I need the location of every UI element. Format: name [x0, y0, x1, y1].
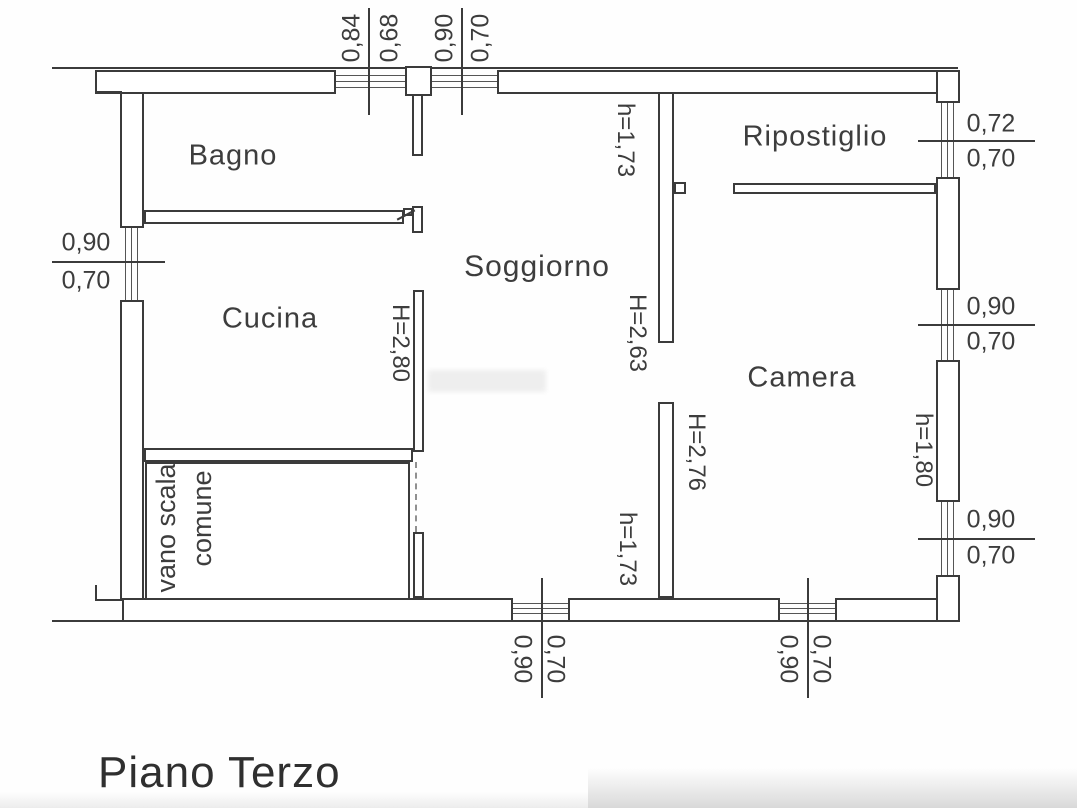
dim-right-window-top-sill: 0,70: [967, 145, 1016, 174]
left-window-pane: [137, 228, 138, 300]
dim-right-window-bottom-width: 0,90: [967, 506, 1016, 535]
dim-line-left-window: [52, 261, 165, 263]
dim-line-right-window-middle: [918, 324, 1035, 326]
top-exterior-line: [52, 67, 958, 69]
left-wall-lower: [120, 300, 144, 600]
right-wall-bottom-corner: [936, 575, 960, 622]
dim-bottom-window-right-sill: 0,70: [807, 635, 836, 684]
bottom-wall-left-segment: [122, 598, 513, 622]
room-label-camera: Camera: [747, 362, 856, 395]
dim-left-window-sill: 0,70: [62, 267, 111, 296]
bottom-right-shading: [588, 768, 1077, 808]
dim-right-window-top-width: 0,72: [967, 110, 1016, 139]
top-window-1-pane: [336, 75, 405, 76]
top-window-2-pane: [432, 81, 497, 82]
room-label-cucina: Cucina: [222, 303, 318, 336]
left-window-pane: [131, 228, 132, 300]
dim-left-window-width: 0,90: [62, 229, 111, 258]
top-window-1-pane: [336, 81, 405, 82]
top-window-2-pane: [432, 87, 497, 88]
dim-line-top-window-1: [368, 8, 370, 115]
dim-top-window-2-sill: 0,70: [467, 14, 496, 63]
left-wall-bottom-tick: [95, 585, 97, 601]
cucina-soggiorno-partition-lower: [413, 532, 424, 598]
height-camera-wall: H=2,76: [682, 413, 710, 491]
bagno-right-wall-stub: [412, 94, 423, 156]
top-wall-pier: [405, 66, 432, 96]
plan-title: Piano Terzo: [98, 748, 341, 798]
ripostiglio-wall-stub: [674, 182, 686, 194]
soggiorno-camera-partition-lower: [658, 402, 674, 598]
soggiorno-camera-partition-upper: [658, 92, 674, 343]
dim-bottom-window-left-width: 0,90: [508, 635, 537, 684]
dim-line-top-window-2: [461, 8, 463, 115]
ripostiglio-bottom-wall: [733, 183, 936, 194]
room-label-ripostiglio: Ripostiglio: [743, 121, 888, 154]
height-camera-doorway: h=1,73: [613, 512, 641, 586]
right-wall-block-1: [936, 177, 960, 290]
right-wall-block-2: [936, 360, 960, 502]
left-wall-bottom-cap: [96, 599, 122, 601]
cucina-soggiorno-partition-upper: [413, 290, 424, 452]
top-wall-right-segment: [497, 70, 938, 94]
top-window-1-pane: [336, 87, 405, 88]
vano-scala-line-1: vano scala: [149, 463, 185, 592]
dim-top-window-2-width: 0,90: [431, 14, 460, 63]
room-label-vano-scala: vano scala comune: [149, 463, 221, 592]
vano-scala-line-2: comune: [185, 463, 221, 592]
dim-top-window-1-width: 0,84: [338, 14, 367, 63]
dim-right-window-middle-width: 0,90: [967, 293, 1016, 322]
dim-line-right-window-top: [918, 140, 1035, 142]
room-label-soggiorno: Soggiorno: [464, 250, 610, 284]
top-wall-left-segment: [95, 70, 336, 94]
top-window-2-pane: [432, 75, 497, 76]
height-cucina-wall: H=2,80: [386, 304, 414, 382]
vano-scala-door-opening: [415, 462, 417, 532]
room-label-bagno: Bagno: [189, 140, 278, 173]
height-camera-window: h=1,80: [909, 413, 937, 487]
dim-line-right-window-bottom: [918, 538, 1035, 540]
floor-plan: 0,84 0,68 0,90 0,70 0,90 0,70 0,72 0,70 …: [0, 0, 1077, 808]
dim-right-window-bottom-sill: 0,70: [967, 542, 1016, 571]
left-window-pane: [125, 228, 126, 300]
height-bagno-doorway: h=1,73: [611, 103, 639, 177]
scan-smudge: [428, 370, 546, 392]
dim-right-window-middle-sill: 0,70: [967, 328, 1016, 357]
dim-bottom-window-left-sill: 0,70: [541, 635, 570, 684]
height-soggiorno-doorway: H=2,63: [623, 294, 651, 372]
dim-bottom-window-right-width: 0,90: [774, 635, 803, 684]
bottom-wall-right-segment: [835, 598, 938, 622]
bagno-bottom-wall: [144, 210, 404, 224]
bottom-wall-middle-segment: [568, 598, 780, 622]
dim-top-window-1-sill: 0,68: [376, 14, 405, 63]
cucina-bottom-wall: [144, 448, 413, 462]
left-wall-upper: [120, 92, 144, 228]
left-wall-top-cap: [95, 91, 122, 93]
right-wall-top-corner: [936, 70, 960, 103]
